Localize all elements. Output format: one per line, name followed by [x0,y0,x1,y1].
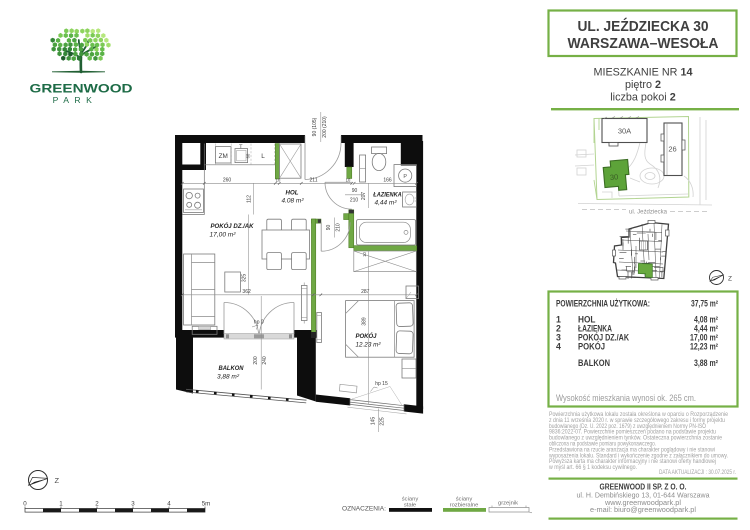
svg-text:BALKON: BALKON [219,365,244,372]
svg-text:ul. Jeździecka: ul. Jeździecka [629,209,667,216]
svg-text:30A: 30A [618,127,631,136]
svg-text:10: 10 [346,178,351,183]
svg-text:rozbieralne: rozbieralne [450,503,479,509]
svg-text:4,44 m²: 4,44 m² [375,200,398,207]
svg-text:ściany: ściany [402,497,419,503]
svg-text:60: 60 [246,153,251,158]
svg-text:ZM: ZM [219,153,228,160]
svg-text:hp 0: hp 0 [254,320,264,326]
svg-text:112: 112 [247,195,253,203]
svg-text:P: P [403,174,407,180]
svg-text:30: 30 [610,172,619,182]
svg-text:POKÓJ: POKÓJ [356,331,377,340]
svg-text:2: 2 [95,501,99,508]
svg-text:325: 325 [242,274,248,283]
svg-text:200 (210): 200 (210) [322,116,328,138]
svg-text:12.23 m²: 12.23 m² [356,342,382,349]
svg-text:260: 260 [223,178,232,184]
svg-text:90: 90 [326,225,332,231]
svg-text:stałe: stałe [404,503,416,509]
svg-text:L: L [261,153,265,160]
svg-text:OZNACZENIA:: OZNACZENIA: [342,506,386,513]
svg-text:BALKON: BALKON [578,358,610,368]
svg-text:166: 166 [383,178,392,184]
svg-text:3,88 m²: 3,88 m² [694,358,718,368]
svg-text:37,75 m²: 37,75 m² [691,299,718,309]
svg-text:26: 26 [668,145,676,154]
svg-text:12,23 m²: 12,23 m² [690,342,718,352]
svg-text:UL. JEŹDZIECKA 30: UL. JEŹDZIECKA 30 [578,18,709,35]
svg-text:Z: Z [728,276,732,283]
svg-text:POKÓJ: POKÓJ [578,341,605,352]
svg-text:362: 362 [242,289,251,295]
svg-text:WARSZAWA–WESOŁA: WARSZAWA–WESOŁA [568,36,720,52]
svg-text:POWIERZCHNIA UŻYTKOWA:: POWIERZCHNIA UŻYTKOWA: [556,299,650,309]
svg-text:90: 90 [352,188,358,194]
svg-text:211: 211 [310,178,318,184]
svg-text:3: 3 [131,501,135,508]
svg-text:grzejnik: grzejnik [498,501,518,507]
svg-text:10: 10 [276,178,281,183]
svg-text:piętro 2: piętro 2 [625,79,661,91]
svg-text:4: 4 [556,342,561,352]
svg-text:HOL: HOL [286,190,299,197]
svg-text:4: 4 [167,501,171,508]
svg-text:225: 225 [379,417,385,426]
svg-text:POKÓJ DZ./AK: POKÓJ DZ./AK [211,221,255,230]
svg-text:389: 389 [362,317,368,326]
svg-text:0: 0 [23,501,27,508]
svg-text:DATA AKTUALIZACJI : 30.07.2025: DATA AKTUALIZACJI : 30.07.2025 r. [659,469,736,476]
svg-text:e-mail: biuro@greenwoodpark.pl: e-mail: biuro@greenwoodpark.pl [590,505,696,514]
svg-text:liczba pokoi 2: liczba pokoi 2 [610,92,675,104]
svg-text:PARK: PARK [53,95,98,105]
svg-text:240: 240 [262,356,268,365]
svg-text:90 (105): 90 (105) [312,117,318,136]
svg-text:MIESZKANIE NR 14: MIESZKANIE NR 14 [593,67,692,79]
svg-text:145: 145 [371,417,377,426]
svg-text:210: 210 [350,198,359,204]
svg-text:10: 10 [362,252,367,257]
svg-text:ściany: ściany [456,497,473,503]
svg-text:207: 207 [361,192,367,201]
svg-text:4.08 m²: 4.08 m² [282,198,305,205]
svg-text:Wysokość mieszkania wynosi ok.: Wysokość mieszkania wynosi ok. 265 cm. [556,392,696,403]
svg-text:3,88 m²: 3,88 m² [217,374,240,381]
svg-text:GREENWOOD: GREENWOOD [30,81,133,95]
svg-text:Z: Z [55,476,60,485]
svg-text:ŁAZIENKA: ŁAZIENKA [372,192,402,199]
svg-text:200: 200 [253,356,259,365]
svg-text:17,00 m²: 17,00 m² [210,232,237,239]
svg-text:210: 210 [336,223,342,232]
svg-text:hp 15: hp 15 [375,381,388,387]
svg-text:5m: 5m [202,501,211,508]
svg-text:w myśl art. 66 § 1 kodeksu cyw: w myśl art. 66 § 1 kodeksu cywilnego. [548,464,637,471]
svg-text:1: 1 [59,501,63,508]
